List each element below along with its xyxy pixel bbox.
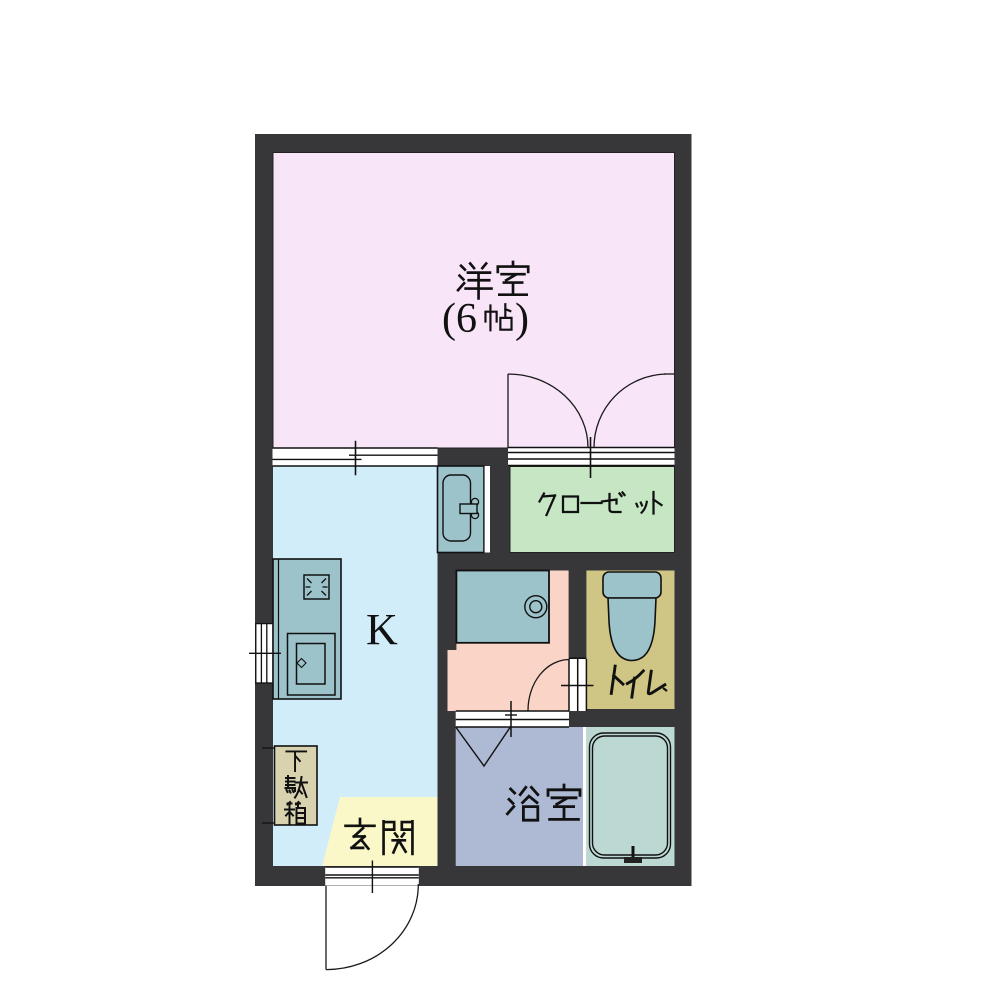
svg-text:K: K [366,605,398,654]
svg-text:(6: (6 [442,296,477,342]
svg-text:): ) [515,296,529,342]
